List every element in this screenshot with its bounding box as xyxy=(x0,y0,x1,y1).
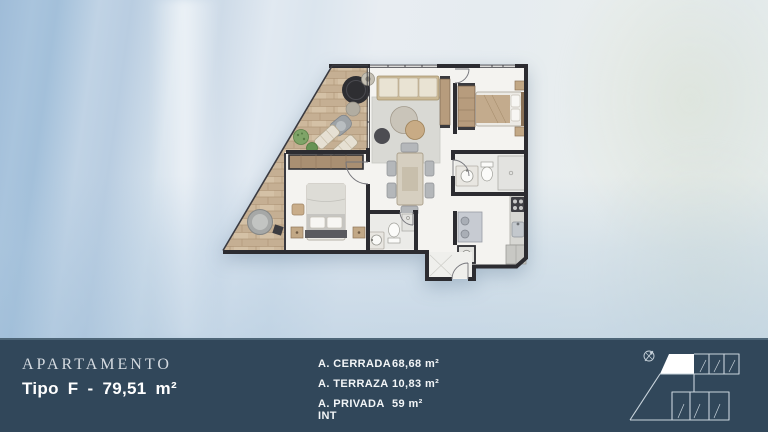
dark-pouf xyxy=(374,128,390,144)
toilet xyxy=(388,223,400,243)
area-value: 59 m² xyxy=(392,398,423,422)
bathroom-1 xyxy=(369,213,415,249)
terrace-pouf xyxy=(346,102,360,116)
area-row-terraza: A. TERRAZA 10,83 m² xyxy=(318,378,439,390)
toilet xyxy=(481,162,493,181)
bench xyxy=(292,204,304,215)
apartment-block: APARTAMENTO Tipo F - 79,51 m² xyxy=(22,356,177,399)
area-row-privada: A. PRIVADA INT 59 m² xyxy=(318,398,439,422)
sofa xyxy=(377,76,439,100)
bed-2 xyxy=(476,92,525,126)
slide: APARTAMENTO Tipo F - 79,51 m² A. CERRADA… xyxy=(0,0,768,432)
apartment-title: APARTAMENTO xyxy=(22,356,177,374)
keyplan xyxy=(622,342,757,430)
area-label: A. TERRAZA xyxy=(318,378,392,390)
area-list: A. CERRADA 68,68 m² A. TERRAZA 10,83 m² … xyxy=(318,358,439,430)
shower xyxy=(498,156,525,190)
apartment-type: Tipo F - 79,51 m² xyxy=(22,379,177,399)
area-value: 10,83 m² xyxy=(392,378,439,390)
bed-main xyxy=(305,184,347,240)
stove xyxy=(511,197,525,212)
bathroom-2 xyxy=(455,154,526,192)
wardrobe-2 xyxy=(458,83,475,130)
area-row-cerrada: A. CERRADA 68,68 m² xyxy=(318,358,439,370)
area-label: A. CERRADA xyxy=(318,358,392,370)
north-arrow-icon xyxy=(644,351,654,361)
entry xyxy=(427,252,472,278)
floor-plan xyxy=(222,64,535,290)
bottom-bar: APARTAMENTO Tipo F - 79,51 m² A. CERRADA… xyxy=(0,338,768,432)
side-table xyxy=(406,121,425,140)
kitchen-island xyxy=(458,212,482,242)
area-value: 68,68 m² xyxy=(392,358,439,370)
area-label: A. PRIVADA INT xyxy=(318,398,392,422)
tv-panel xyxy=(440,76,450,128)
keyplan-highlighted-unit xyxy=(660,354,694,374)
sink xyxy=(461,170,473,182)
